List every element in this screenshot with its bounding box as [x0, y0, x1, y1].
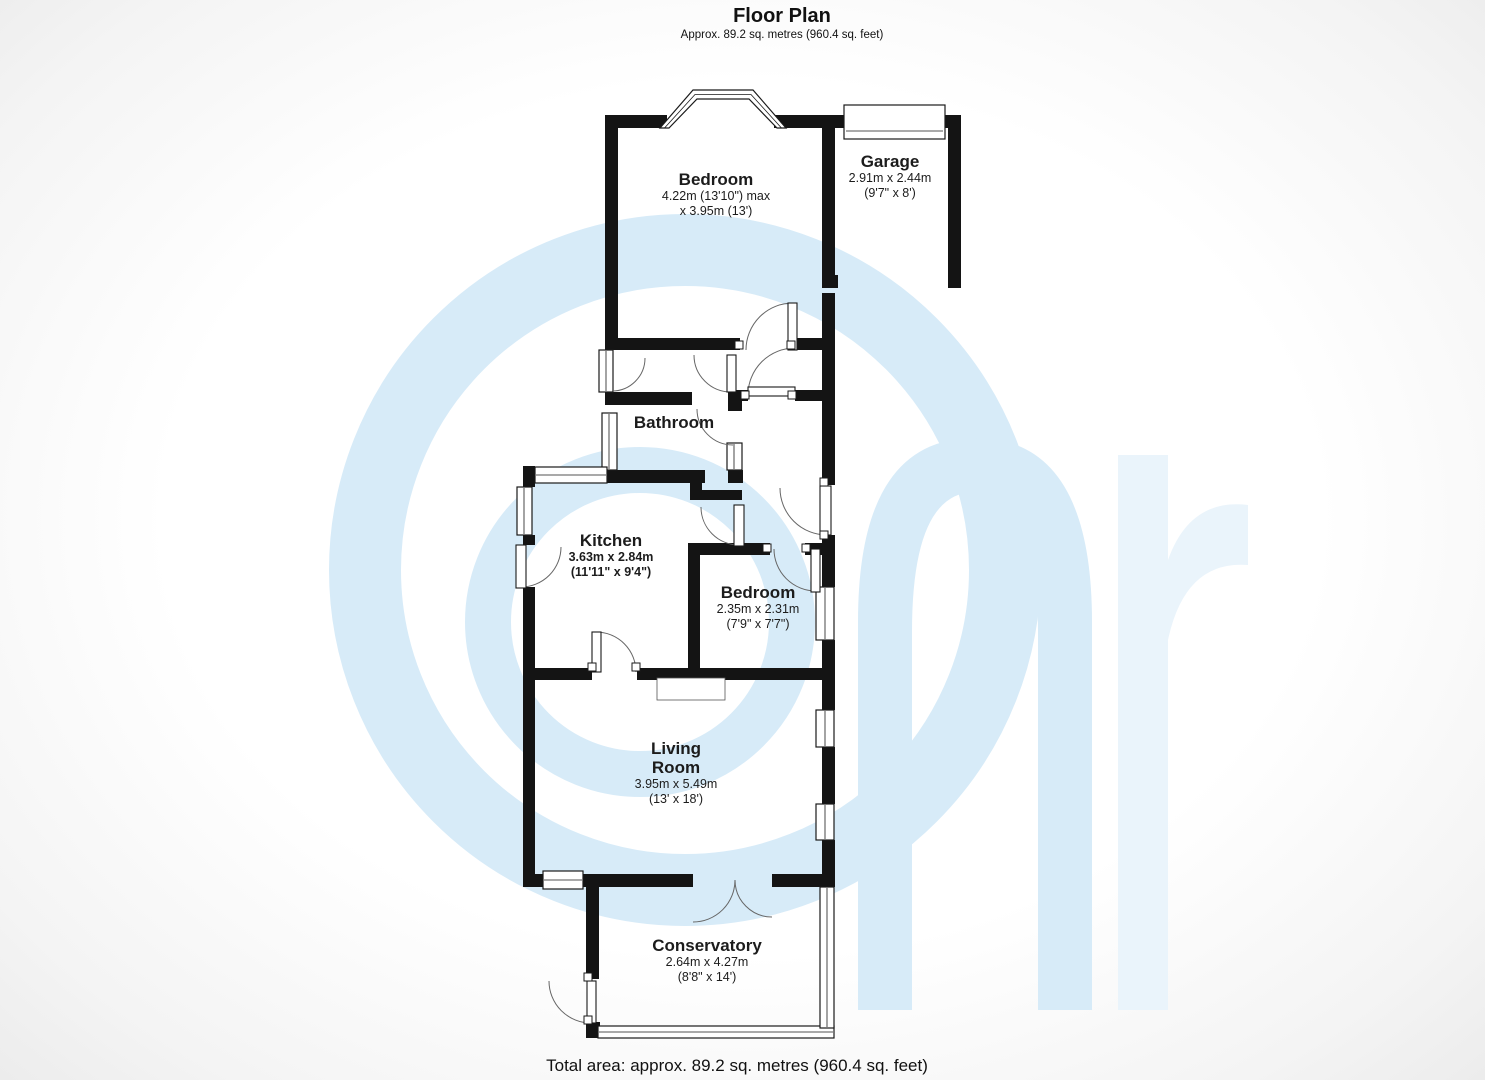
room-label-bedroom2: Bedroom 2.35m x 2.31m (7'9" x 7'7")	[717, 583, 800, 632]
window-living-right-2	[816, 804, 834, 840]
bedroom2-door-leaf	[811, 549, 820, 592]
room-name: Living	[635, 739, 718, 758]
room-label-bedroom1: Bedroom 4.22m (13'10") max x 3.95m (13')	[662, 170, 770, 219]
lobby-bathroom-door-arc	[694, 355, 731, 392]
window-bathroom-left	[602, 413, 617, 470]
room-dimensions-imperial: (9'7" x 8')	[849, 186, 932, 201]
fireplace-chimney-breast	[657, 678, 725, 700]
garage-door	[844, 105, 945, 139]
window-bedroom2-right	[816, 587, 834, 640]
room-dimensions-metric: 2.91m x 2.44m	[849, 171, 932, 186]
room-dimensions-imperial: x 3.95m (13')	[662, 204, 770, 219]
window-living-right-1	[816, 710, 834, 747]
watermark-logo	[365, 250, 1248, 1010]
room-name: Kitchen	[569, 531, 654, 550]
room-dimensions-metric: 3.95m x 5.49m	[635, 777, 718, 792]
lobby-bathroom-door-leaf	[727, 355, 736, 392]
room-dimensions-imperial: (11'11" x 9'4")	[569, 565, 654, 580]
room-label-conservatory: Conservatory 2.64m x 4.27m (8'8" x 14')	[652, 936, 762, 985]
lobby-left-door-arc	[612, 358, 645, 391]
corridor-door-leaf	[734, 505, 744, 546]
room-dimensions-imperial: (8'8" x 14')	[652, 970, 762, 985]
conservatory-glass-bottom	[598, 1026, 834, 1038]
side-entrance-door-leaf	[820, 486, 831, 535]
room-dimensions-metric: 2.64m x 4.27m	[652, 955, 762, 970]
bay-window	[660, 90, 786, 128]
room-name: Garage	[849, 152, 932, 171]
total-area-text: Total area: approx. 89.2 sq. metres (960…	[287, 1056, 1187, 1076]
floor-plan-page: Floor Plan Approx. 89.2 sq. metres (960.…	[0, 0, 1485, 1080]
room-name: Room	[635, 758, 718, 777]
room-dimensions-metric: 2.35m x 2.31m	[717, 602, 800, 617]
room-name: Bathroom	[634, 413, 714, 432]
bedroom1-door-arc	[746, 303, 793, 350]
window-living-bottom	[543, 871, 583, 889]
room-label-kitchen: Kitchen 3.63m x 2.84m (11'11" x 9'4")	[569, 531, 654, 580]
kitchen-side-door-leaf	[516, 545, 526, 588]
room-label-garage: Garage 2.91m x 2.44m (9'7" x 8')	[849, 152, 932, 201]
floor-plan-drawing	[0, 0, 1485, 1080]
room-dimensions-metric: 3.63m x 2.84m	[569, 550, 654, 565]
room-dimensions-metric: 4.22m (13'10") max	[662, 189, 770, 204]
window-kitchen-top	[535, 467, 607, 483]
conservatory-glass-right	[820, 887, 834, 1028]
room-dimensions-imperial: (7'9" x 7'7")	[717, 617, 800, 632]
room-name: Bedroom	[717, 583, 800, 602]
room-label-living-room: Living Room 3.95m x 5.49m (13' x 18')	[635, 739, 718, 807]
room-name: Bedroom	[662, 170, 770, 189]
room-label-bathroom: Bathroom	[634, 413, 714, 432]
window-lobby-left	[599, 350, 613, 392]
kitchen-living-door-arc	[596, 632, 636, 672]
room-dimensions-imperial: (13' x 18')	[635, 792, 718, 807]
room-name: Conservatory	[652, 936, 762, 955]
window-bathroom-right	[727, 443, 742, 470]
window-kitchen-left	[517, 487, 532, 535]
